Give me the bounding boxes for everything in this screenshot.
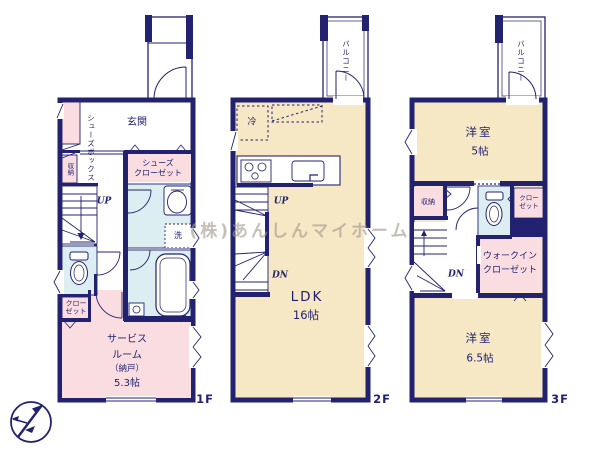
floor-label-1f: 1F <box>196 393 214 407</box>
floor-plan: 玄関 シューズボックス シューズクローゼット 収納 UP 洗 クローゼット サー… <box>0 0 600 449</box>
f1-porch <box>145 15 193 101</box>
floor-label-3f: 3F <box>551 393 569 407</box>
room-label-west-room-65: 洋室 <box>466 332 493 346</box>
stairs-up-label-2f: UP <box>274 197 289 208</box>
f1-stairs-icon <box>62 186 97 244</box>
stairs-up-label-1f: UP <box>97 197 112 208</box>
f2-kitchen <box>237 156 340 187</box>
f2-stairs-icon <box>233 187 270 297</box>
stairs-dn-label-2f: DN <box>272 271 288 282</box>
washing-machine-label: 洗 <box>174 231 182 241</box>
room-label-storage-1f: 収納 <box>65 163 73 176</box>
room-label-storage-3f: 収納 <box>421 198 435 206</box>
room-label-west-room-5-size: 5帖 <box>471 146 488 159</box>
watermark: (株)あんしんマイホーム <box>189 217 410 242</box>
room-label-shoes-closet: シューズクローゼット <box>134 158 182 177</box>
room-label-walk-in-closet: ウォークインクローゼット <box>483 251 537 278</box>
room-label-balcony-3f: バルコニー <box>517 40 526 83</box>
north-arrow-icon <box>11 402 51 442</box>
fridge-label: 冷 <box>247 118 256 129</box>
room-label-closet-3f: クローゼット <box>519 195 539 211</box>
room-label-ldk-size: 16帖 <box>293 309 319 323</box>
room-label-closet-1f: クローゼット <box>66 300 87 317</box>
room-label-ldk: LDK <box>291 289 324 305</box>
room-label-balcony-2f: バルコニー <box>342 40 351 83</box>
f2-sink-icon <box>292 161 324 181</box>
room-label-genkan: 玄関 <box>127 117 147 129</box>
room-label-west-room-5: 洋室 <box>466 126 493 140</box>
room-label-shoes-box: シューズボックス <box>87 114 96 148</box>
stairs-dn-label-3f: DN <box>448 270 464 281</box>
floor-2f <box>229 15 375 404</box>
room-label-service-room: サービス ルーム （納戸） 5.3帖 <box>107 332 147 392</box>
room-label-west-room-65-size: 6.5帖 <box>466 353 493 366</box>
floor-label-2f: 2F <box>373 393 391 407</box>
